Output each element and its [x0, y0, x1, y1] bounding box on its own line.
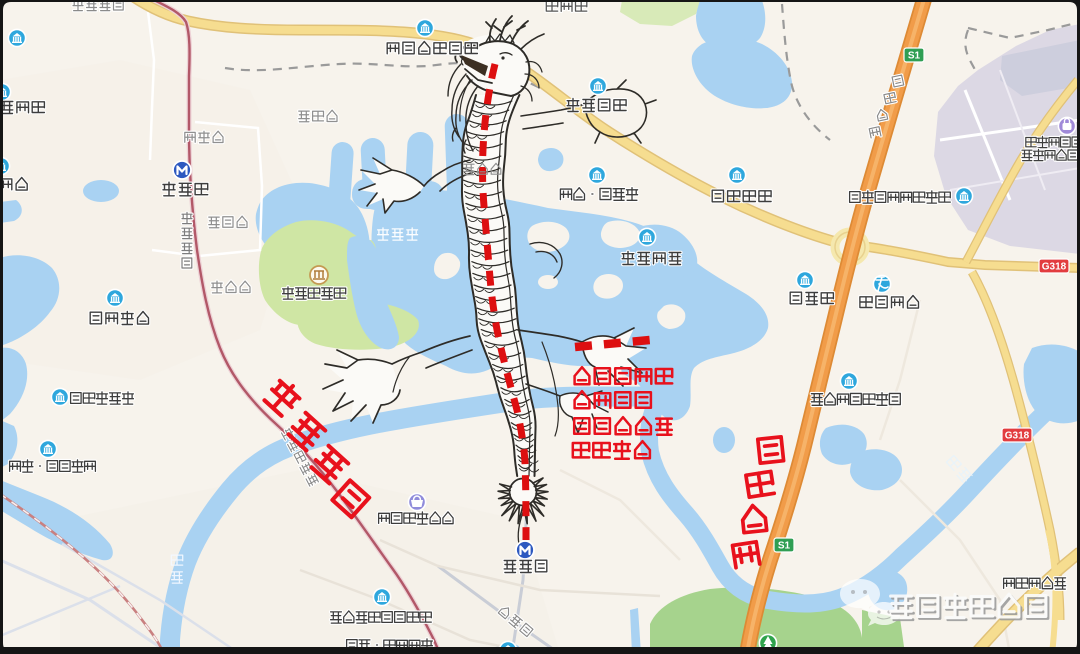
svg-text:S1: S1: [778, 541, 791, 552]
svg-text:S1: S1: [908, 51, 921, 62]
svg-text:G318: G318: [1005, 431, 1030, 442]
svg-text:G318: G318: [1042, 262, 1067, 273]
